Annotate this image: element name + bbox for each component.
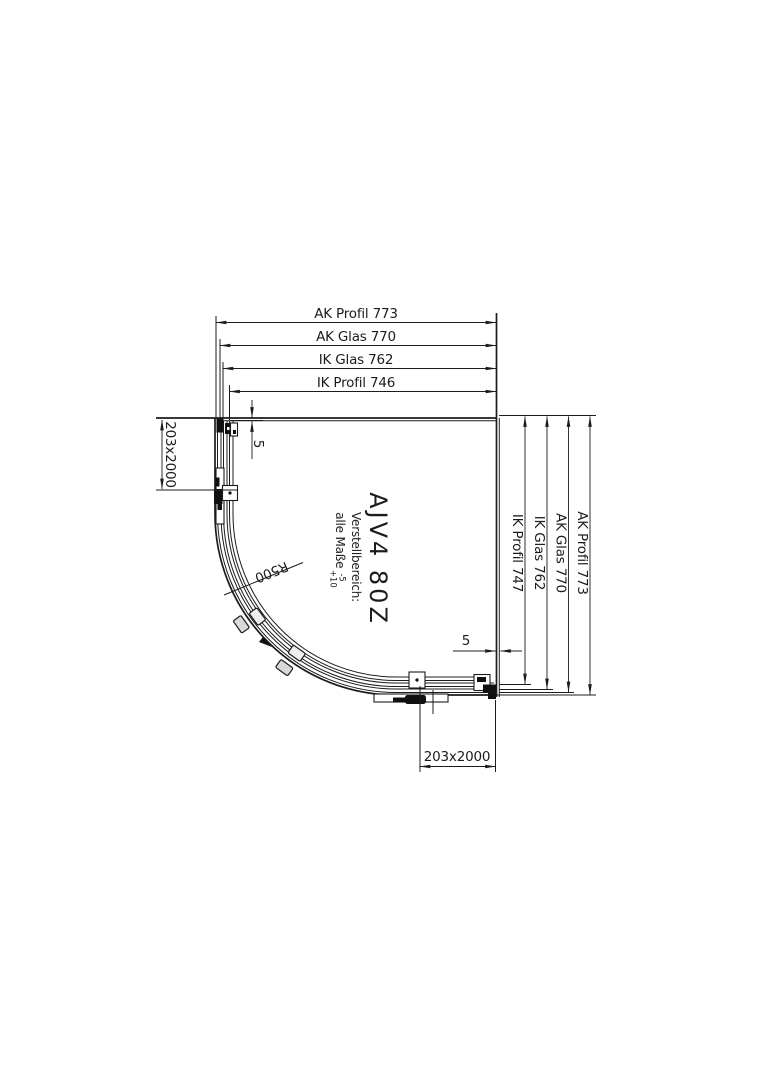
- dim-label-ak-profil-top: AK Profil 773: [314, 306, 398, 322]
- cad-canvas: AK Profil 773 AK Glas 770 IK Glas 762 IK…: [0, 0, 763, 1080]
- dim-label-bottom-panel: 203x2000: [424, 749, 491, 765]
- dim-label-ak-glas-top: AK Glas 770: [316, 329, 396, 345]
- left-wall-bracket-screw: [228, 491, 231, 494]
- model-label: AJV4 80Z: [364, 492, 392, 626]
- left-door-handle-lower: [218, 503, 223, 510]
- bottom-wall-bracket-screw: [415, 678, 418, 681]
- bottom-door-handle: [405, 695, 426, 704]
- top-corner-block-hole: [227, 427, 230, 430]
- dim-label-ak-profil-right: AK Profil 773: [574, 511, 590, 595]
- gap-dimension-right: 5: [453, 633, 522, 651]
- dim-label-ik-glas-right: IK Glas 762: [531, 516, 547, 591]
- dim-label-left-panel: 203x2000: [162, 421, 178, 488]
- centre-annotations: AJV4 80Z Verstellbereich: alle Maße-5+10: [328, 492, 393, 626]
- corner-block-2: [488, 693, 496, 699]
- left-door-stop: [216, 478, 220, 487]
- top-corner-bracket-pin: [233, 430, 236, 434]
- top-corner-bracket: [231, 423, 238, 436]
- adjustment-note-title: Verstellbereich:: [349, 512, 363, 602]
- radius-label: R500: [253, 558, 291, 586]
- dim-label-ak-glas-right: AK Glas 770: [553, 513, 569, 593]
- top-corner-block: [217, 419, 224, 433]
- drawing-page: AK Profil 773 AK Glas 770 IK Glas 762 IK…: [0, 0, 763, 1080]
- dim-label-ik-profil-top: IK Profil 746: [317, 375, 395, 391]
- dim-label-ik-glas-top: IK Glas 762: [319, 352, 394, 368]
- bottom-door-handle-left: [393, 698, 406, 703]
- gap-label-right: 5: [462, 633, 470, 649]
- radius-callout: R500: [224, 558, 303, 595]
- gap-label-top: 5: [250, 440, 266, 448]
- adjustment-note-body: alle Maße-5+10: [328, 512, 348, 588]
- right-dimension-chain: IK Profil 747 IK Glas 762 AK Glas 770 AK…: [499, 416, 596, 695]
- top-dimension-chain: AK Profil 773 AK Glas 770 IK Glas 762 IK…: [216, 306, 496, 420]
- note-body-text: alle Maße: [333, 512, 347, 568]
- tolerance-lower: +10: [328, 570, 338, 588]
- corner-block: [483, 685, 496, 693]
- dim-label-ik-profil-right: IK Profil 747: [509, 514, 525, 592]
- left-door-handle: [214, 489, 223, 504]
- corner-bracket-pin: [477, 677, 486, 682]
